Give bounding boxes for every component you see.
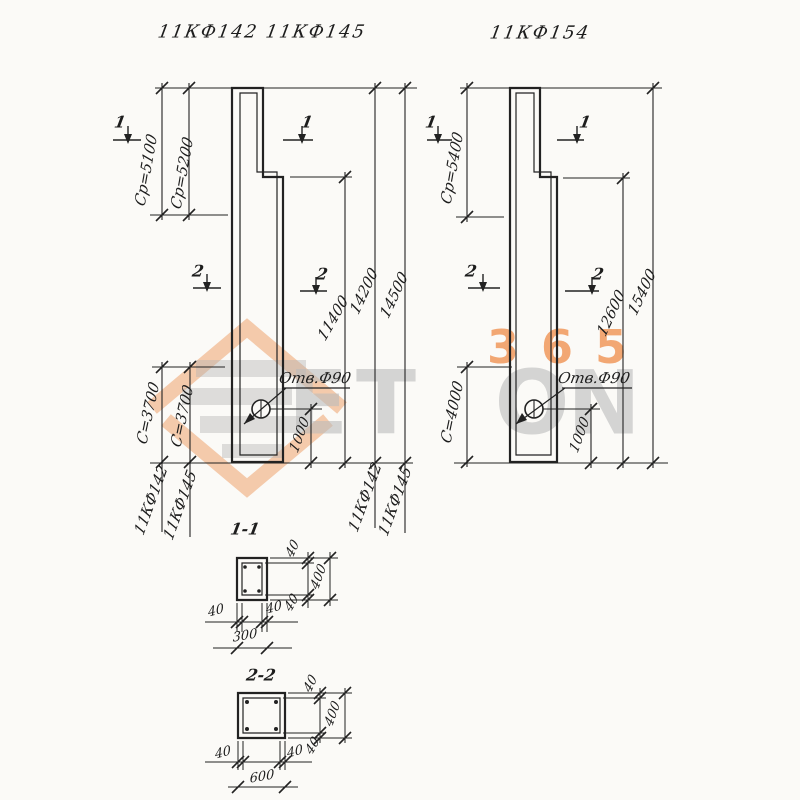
blueprint-canvas: 365 E T O N (0, 0, 800, 800)
section-title-1-1: 1-1 (229, 520, 261, 539)
hole-label: Отв.Ф90 (278, 369, 353, 387)
leader-arrowhead (516, 413, 527, 424)
section-title-2-2: 2-2 (245, 666, 277, 685)
hole-label: Отв.Ф90 (557, 369, 632, 387)
title-right-column: 11КФ154 (488, 23, 592, 44)
right-dimension-lines (454, 83, 668, 468)
title-left-columns: 11КФ142 11КФ145 (156, 22, 368, 43)
